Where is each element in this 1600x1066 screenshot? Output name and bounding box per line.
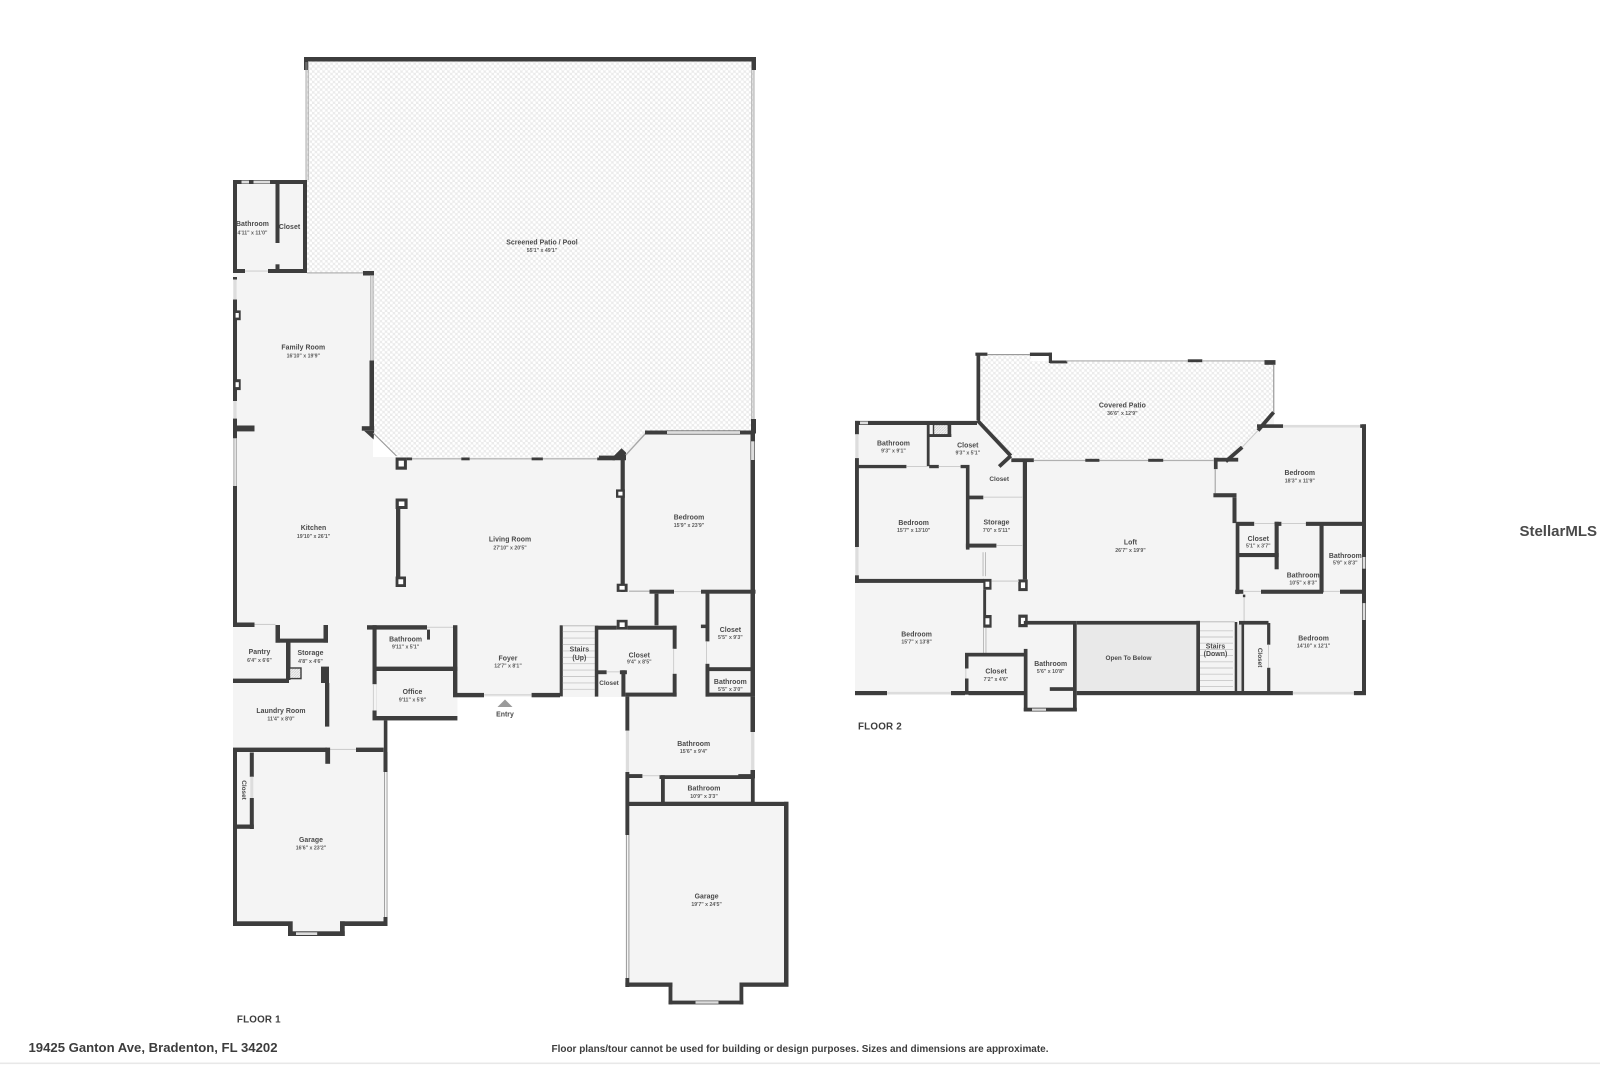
svg-text:15'9" x 23'9": 15'9" x 23'9" [674, 523, 705, 529]
svg-text:9'4" x 8'5": 9'4" x 8'5" [627, 660, 652, 666]
svg-text:Pantry: Pantry [249, 649, 271, 656]
svg-text:16'10" x 19'9": 16'10" x 19'9" [287, 353, 321, 359]
svg-text:Closet: Closet [720, 627, 742, 634]
svg-text:Family Room: Family Room [281, 344, 325, 351]
svg-text:FLOOR 2: FLOOR 2 [858, 722, 902, 733]
svg-text:Stairs: Stairs [570, 647, 590, 654]
svg-text:Garage: Garage [695, 894, 719, 901]
svg-text:5'5" x 9'3": 5'5" x 9'3" [718, 635, 743, 641]
svg-text:Bedroom: Bedroom [901, 631, 932, 638]
svg-text:Bathroom: Bathroom [714, 679, 747, 686]
svg-text:15'6" x 9'4": 15'6" x 9'4" [680, 749, 708, 755]
svg-text:19'10" x 26'1": 19'10" x 26'1" [297, 534, 331, 540]
svg-text:4'11" x 11'0": 4'11" x 11'0" [238, 231, 268, 237]
svg-text:Closet: Closet [629, 652, 651, 659]
svg-text:15'7" x 13'10": 15'7" x 13'10" [897, 528, 931, 534]
svg-text:7'2" x 4'6": 7'2" x 4'6" [984, 677, 1009, 683]
svg-text:7'0" x 5'11": 7'0" x 5'11" [983, 528, 1011, 534]
svg-text:19'7" x 24'5": 19'7" x 24'5" [691, 902, 722, 908]
svg-text:Entry: Entry [496, 712, 514, 719]
svg-text:6'4" x 6'6": 6'4" x 6'6" [247, 658, 272, 664]
svg-text:(Down): (Down) [1204, 651, 1228, 658]
svg-text:Bathroom: Bathroom [1034, 661, 1067, 668]
svg-text:Living Room: Living Room [489, 536, 531, 543]
svg-text:Closet: Closet [1248, 536, 1270, 543]
svg-text:StellarMLS: StellarMLS [1519, 523, 1597, 540]
svg-text:5'9" x 8'3": 5'9" x 8'3" [1333, 560, 1358, 566]
svg-text:9'11" x 5'8": 9'11" x 5'8" [399, 697, 427, 703]
svg-text:5'5" x 3'0": 5'5" x 3'0" [718, 687, 743, 693]
svg-text:Bedroom: Bedroom [674, 515, 705, 522]
svg-text:9'3" x 5'1": 9'3" x 5'1" [955, 450, 980, 456]
svg-text:Foyer: Foyer [498, 656, 517, 663]
svg-text:15'7" x 13'8": 15'7" x 13'8" [901, 640, 932, 646]
svg-text:Bathroom: Bathroom [688, 786, 721, 793]
svg-text:Laundry Room: Laundry Room [256, 708, 305, 715]
svg-text:Storage: Storage [297, 650, 323, 657]
svg-text:Closet: Closet [989, 476, 1009, 483]
svg-text:Bedroom: Bedroom [1284, 470, 1315, 477]
svg-text:Bathroom: Bathroom [1329, 553, 1362, 560]
svg-text:Closet: Closet [985, 669, 1007, 676]
svg-text:19425 Ganton Ave, Bradenton, F: 19425 Ganton Ave, Bradenton, FL 34202 [29, 1041, 278, 1055]
svg-text:4'8" x 4'6": 4'8" x 4'6" [298, 659, 323, 665]
svg-text:Bathroom: Bathroom [1287, 573, 1320, 580]
svg-text:Bathroom: Bathroom [389, 637, 422, 644]
svg-text:Closet: Closet [957, 443, 979, 450]
svg-text:14'10" x 12'1": 14'10" x 12'1" [1297, 644, 1331, 650]
svg-text:Bathroom: Bathroom [877, 441, 910, 448]
svg-text:5'1" x 3'7": 5'1" x 3'7" [1246, 543, 1271, 549]
svg-text:Garage: Garage [299, 837, 323, 844]
svg-text:26'7" x 19'9": 26'7" x 19'9" [1115, 548, 1146, 554]
svg-text:16'6" x 23'2": 16'6" x 23'2" [296, 846, 327, 852]
svg-text:Closet: Closet [279, 224, 301, 231]
svg-text:Closet: Closet [1256, 648, 1263, 668]
svg-text:9'11" x 5'1": 9'11" x 5'1" [392, 645, 420, 651]
svg-text:Stairs: Stairs [1206, 643, 1226, 650]
svg-text:9'3" x 9'1": 9'3" x 9'1" [881, 448, 906, 454]
svg-text:Office: Office [403, 689, 423, 696]
svg-text:36'6" x 12'9": 36'6" x 12'9" [1107, 411, 1138, 417]
svg-text:Bathroom: Bathroom [677, 741, 710, 748]
svg-text:Bathroom: Bathroom [236, 221, 269, 228]
svg-text:Kitchen: Kitchen [301, 525, 327, 532]
svg-text:Storage: Storage [983, 520, 1009, 527]
svg-text:Bedroom: Bedroom [898, 520, 929, 527]
svg-text:Floor plans/tour cannot be use: Floor plans/tour cannot be used for buil… [552, 1044, 1049, 1055]
svg-text:Open To Below: Open To Below [1105, 655, 1151, 662]
svg-text:FLOOR 1: FLOOR 1 [237, 1015, 281, 1026]
svg-text:Screened Patio / Pool: Screened Patio / Pool [506, 239, 578, 246]
svg-text:12'7" x 8'1": 12'7" x 8'1" [494, 663, 522, 669]
svg-text:55'1" x 49'1": 55'1" x 49'1" [527, 248, 558, 254]
svg-text:Loft: Loft [1124, 539, 1138, 546]
svg-text:10'9" x 3'3": 10'9" x 3'3" [690, 794, 718, 800]
svg-text:27'10" x 20'5": 27'10" x 20'5" [493, 545, 527, 551]
svg-text:18'3" x 11'9": 18'3" x 11'9" [1285, 479, 1316, 485]
svg-text:5'6" x 10'8": 5'6" x 10'8" [1037, 669, 1065, 675]
svg-text:Bedroom: Bedroom [1298, 635, 1329, 642]
svg-text:Closet: Closet [599, 680, 619, 687]
svg-text:Covered Patio: Covered Patio [1099, 403, 1146, 410]
svg-text:Closet: Closet [240, 780, 247, 800]
svg-text:10'5" x 8'3": 10'5" x 8'3" [1289, 580, 1317, 586]
svg-text:11'4" x 8'0": 11'4" x 8'0" [267, 717, 295, 723]
svg-text:(Up): (Up) [572, 655, 586, 662]
